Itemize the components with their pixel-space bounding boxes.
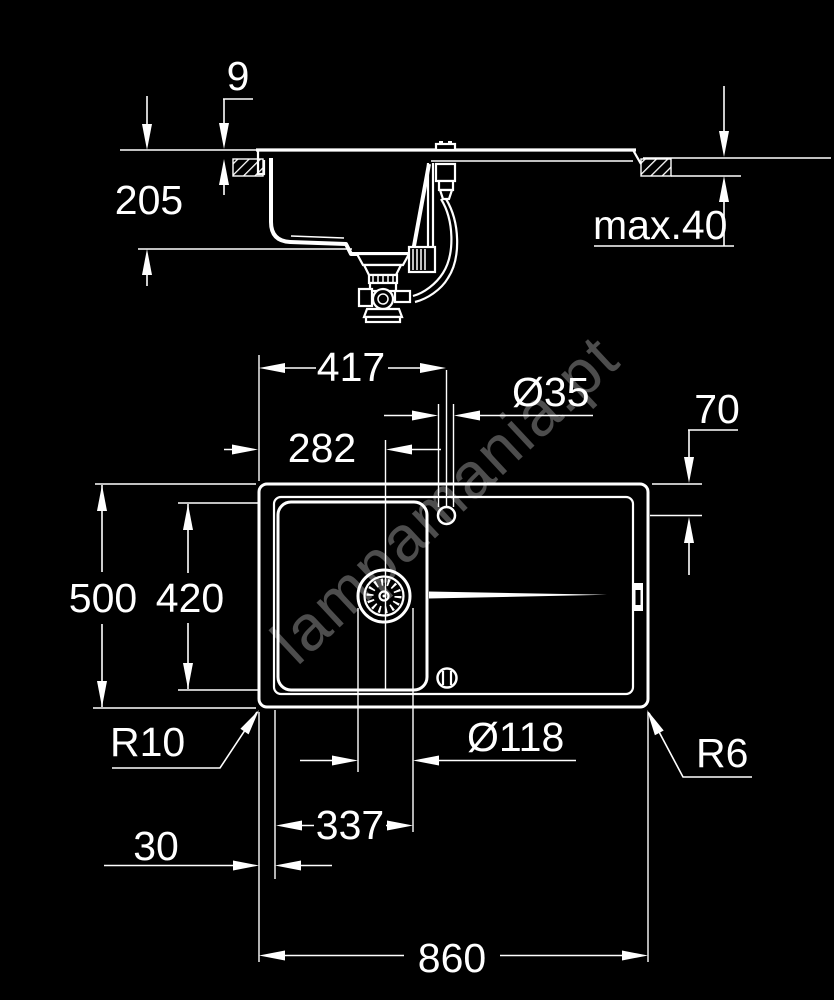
dim-label-500: 500 [69,575,137,621]
drainboard-groove [429,592,607,599]
dim-label-r10: R10 [110,719,185,765]
bowl-profile [271,158,429,254]
dim-label-35: Ø35 [512,369,590,415]
leader-r6: R6 [647,710,752,777]
bowl-inner-bottom-line [291,236,344,238]
dim-417: 417 [259,344,446,390]
drain-assembly [357,254,410,322]
dim-drain-dia: Ø118 [300,714,576,766]
ext-70 [650,484,702,516]
overflow-hole [438,669,457,688]
dim-337: 337 [276,802,413,848]
dim-420: 420 [156,504,224,689]
sink-rim-right-lip [633,150,641,164]
dim-label-30: 30 [133,823,179,869]
dim-label-70: 70 [694,386,740,432]
dim-label-9: 9 [227,53,250,99]
dim-label-420: 420 [156,575,224,621]
dim-860: 860 [259,935,648,981]
tap-hole [438,507,455,524]
dim-70: 70 [684,386,740,575]
dim-30: 30 [104,823,332,871]
dim-500: 500 [69,485,137,707]
dim-bowl-depth: 205 [115,96,183,286]
side-view: 9 205 max.40 [115,53,831,322]
leader-r10: R10 [110,710,259,768]
dim-label-860: 860 [418,935,486,981]
sink-drawing-svg: 9 205 max.40 [0,0,834,1000]
plan-view: 417 Ø35 282 70 [69,344,752,981]
dim-label-118: Ø118 [467,714,564,760]
dim-label-max40: max.40 [593,202,727,248]
drain-strainer [358,570,410,622]
dim-label-205: 205 [115,177,183,223]
overflow-elbow [409,247,435,272]
rim-edge-marker [633,583,643,611]
dim-label-282: 282 [288,425,356,471]
dim-label-337: 337 [316,802,384,848]
dim-label-417: 417 [317,344,385,390]
bowl-outline [278,502,427,690]
dim-282: 282 [224,425,441,471]
dim-label-r6: R6 [696,730,748,776]
counter-section-right [641,159,671,176]
faucet-hole-plug [436,144,455,150]
technical-drawing-page: lampamania.pt [0,0,834,1000]
dim-tap-hole-dia: Ø35 [384,369,593,421]
